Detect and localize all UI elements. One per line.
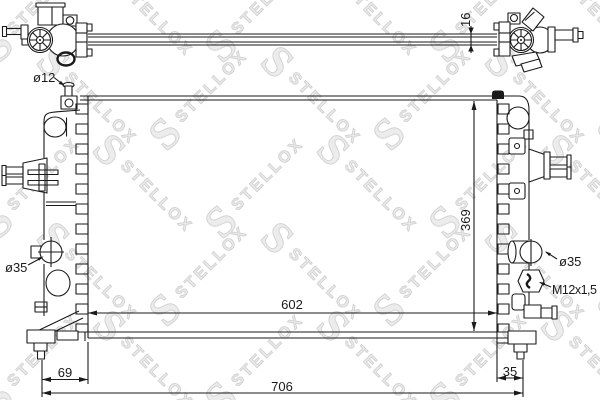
mounting-foot-left	[27, 330, 78, 359]
dim-label-core-width: 602	[281, 297, 303, 312]
dim-label-drain-thread: M12x1,5	[552, 283, 597, 297]
outlet-port	[508, 239, 542, 266]
left-impeller-icon	[28, 28, 53, 53]
radiator-drawing-page: SSTELLOXSSTELLOXSSTELLOXSSTELLOXSSTELLOX…	[0, 0, 600, 400]
drain-plug	[518, 270, 544, 292]
inlet-port	[31, 237, 64, 267]
right-tank	[497, 104, 571, 359]
filler-cap	[492, 91, 504, 100]
dim-label-left-foot-offset: 69	[58, 365, 72, 380]
radiator-technical-drawing: 16 ø12 ø35 369 602 ø35	[0, 0, 600, 400]
dim-label-core-height: 369	[458, 209, 473, 231]
top-view-right-assembly	[494, 8, 583, 72]
dim-label-core-depth: 16	[458, 13, 473, 27]
mounting-foot-right	[508, 331, 536, 359]
dim-label-pipe-diameter: ø12	[33, 70, 55, 85]
inlet-fitting	[2, 158, 58, 193]
outlet-fitting	[529, 149, 571, 182]
overflow-pipe	[65, 86, 72, 96]
dim-label-inlet-diameter: ø35	[5, 260, 27, 275]
dim-label-right-foot-offset: 35	[503, 364, 517, 379]
right-side-plate-teeth	[498, 104, 509, 332]
dim-label-overall-width: 706	[271, 379, 293, 394]
top-view-left-assembly	[3, 3, 93, 66]
top-view-connecting-tube	[88, 34, 497, 45]
left-tank	[2, 83, 88, 360]
dim-label-outlet-diameter: ø35	[559, 254, 581, 269]
left-side-plate-teeth	[76, 104, 88, 332]
right-impeller-icon	[509, 28, 534, 53]
